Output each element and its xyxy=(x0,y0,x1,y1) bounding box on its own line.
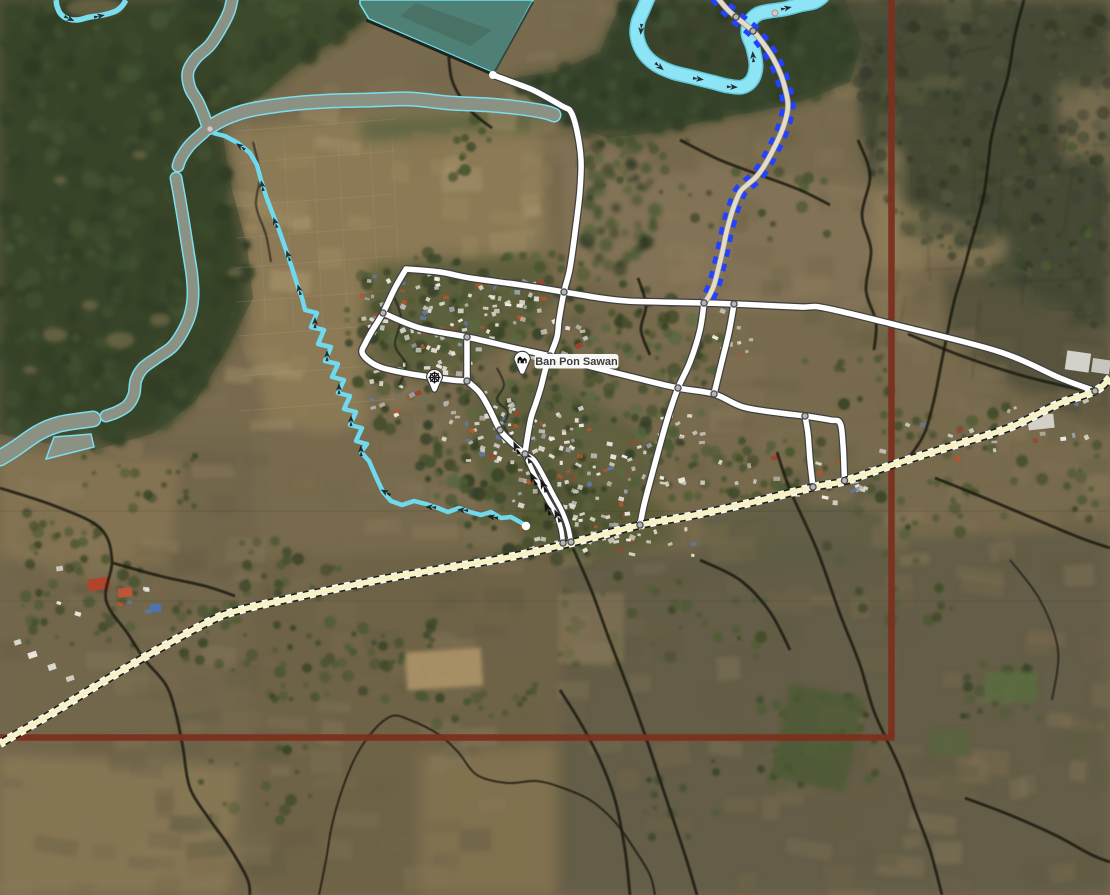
svg-text:Ban Pon Sawan: Ban Pon Sawan xyxy=(535,356,618,368)
